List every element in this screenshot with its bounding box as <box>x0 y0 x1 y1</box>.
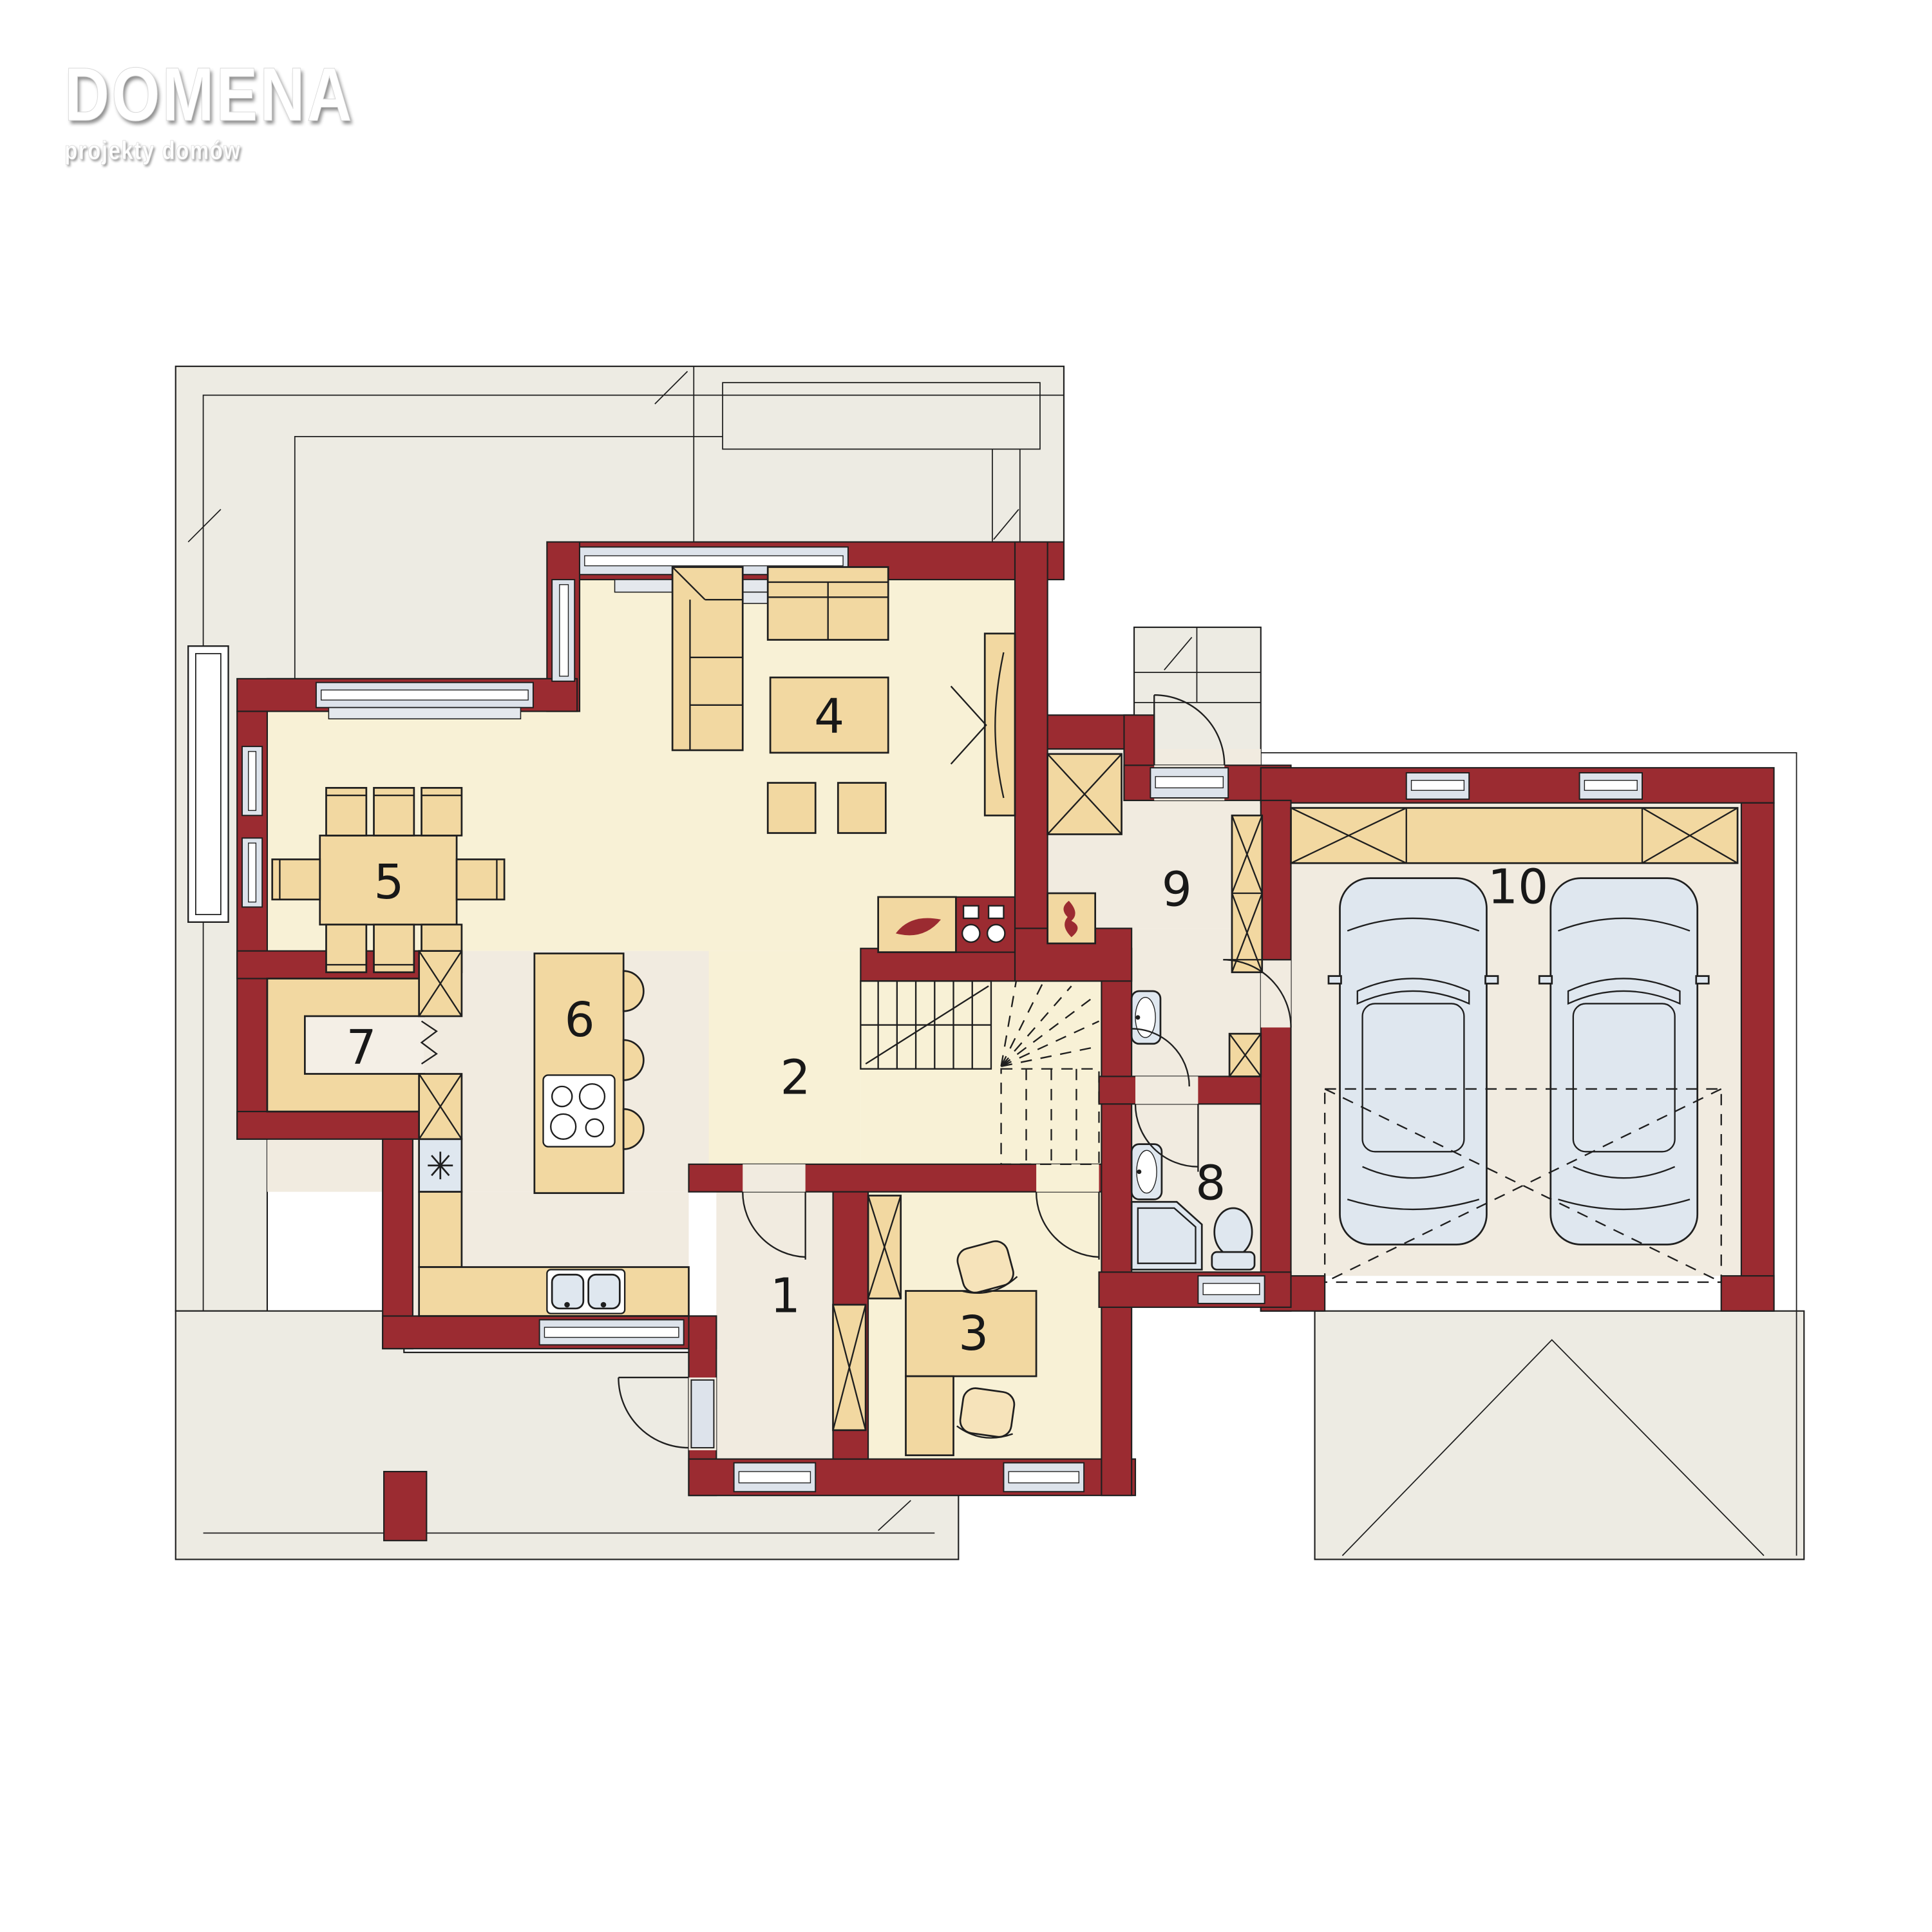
left-exterior-strip <box>188 646 228 922</box>
room-label-3: 3 <box>958 1306 989 1361</box>
dining-west-window-2-frame <box>249 843 256 902</box>
pantry-south-wall <box>237 1112 439 1139</box>
front-door-threshold-frame <box>1155 777 1223 788</box>
ottoman <box>768 783 815 833</box>
toilet-tank <box>1212 1252 1255 1269</box>
garage-lintel-shelf <box>1291 808 1738 864</box>
garage-west-wall <box>1261 800 1291 1311</box>
terrace-door-leaf <box>691 1380 714 1448</box>
vestibule-window-frame <box>739 1472 810 1483</box>
garage-window-2-frame <box>1584 781 1637 791</box>
toilet-bowl <box>1215 1208 1252 1256</box>
dining-west-window-1-frame <box>249 752 256 811</box>
kitchen-island <box>535 954 623 1193</box>
office-window-frame <box>1009 1472 1079 1483</box>
room-label-10: 10 <box>1488 860 1548 915</box>
car-mirror <box>1539 976 1551 984</box>
room-label-4: 4 <box>814 689 844 744</box>
car-2 <box>1539 878 1709 1245</box>
basin-tap <box>1137 1170 1141 1174</box>
ottoman <box>838 783 885 833</box>
entrance-hall-north-wall <box>1048 715 1134 749</box>
vestibule-door-opening <box>743 1164 805 1192</box>
room-label-2: 2 <box>781 1050 811 1106</box>
room-label-8: 8 <box>1195 1155 1226 1211</box>
east-corridor-wall <box>1101 949 1132 1495</box>
car-mirror <box>1485 976 1497 984</box>
vestibule-floor <box>716 1192 833 1459</box>
garage-door-opening <box>1261 960 1291 1027</box>
floor-plan-drawing: 12345678910 <box>0 0 1932 1932</box>
car-mirror <box>1696 976 1709 984</box>
sink-drain <box>564 1302 570 1308</box>
sink-drain <box>601 1302 607 1308</box>
kitchen-window-frame <box>544 1327 678 1338</box>
room-label-7: 7 <box>346 1020 376 1075</box>
fireplace <box>985 634 1015 815</box>
room-label-6: 6 <box>564 992 594 1048</box>
stove-burner <box>962 925 980 942</box>
garage-east-wall <box>1741 803 1774 1311</box>
terrace-column <box>384 1472 426 1540</box>
car-mirror <box>1329 976 1341 984</box>
stove-plate <box>963 905 978 918</box>
office-desk-return <box>905 1376 953 1455</box>
room-label-9: 9 <box>1162 862 1192 917</box>
living-east-wall <box>1015 542 1048 929</box>
dining-window-sill <box>328 708 520 719</box>
garage-north-wall <box>1261 768 1774 803</box>
bathroom-window-frame <box>1203 1283 1260 1295</box>
room-label-1: 1 <box>770 1269 800 1324</box>
room-label-5: 5 <box>374 855 404 910</box>
garage-window-1-frame <box>1412 781 1464 791</box>
stove-plate <box>989 905 1003 918</box>
living-west-window-frame <box>560 585 569 676</box>
office-door-opening <box>1036 1164 1099 1192</box>
stove-burner <box>987 925 1005 942</box>
living-north-window-frame <box>585 556 843 566</box>
corner-sofa <box>672 567 743 750</box>
dining-north-window-frame <box>321 690 528 700</box>
car-1 <box>1329 878 1498 1245</box>
basin-tap <box>1135 1015 1140 1019</box>
garage-south-wall-right <box>1721 1276 1774 1311</box>
floor-plan-page: DOMENA projekty domów <box>0 0 1932 1932</box>
kitchen-counter <box>419 1192 462 1267</box>
fridge-star-icon <box>428 1151 453 1179</box>
